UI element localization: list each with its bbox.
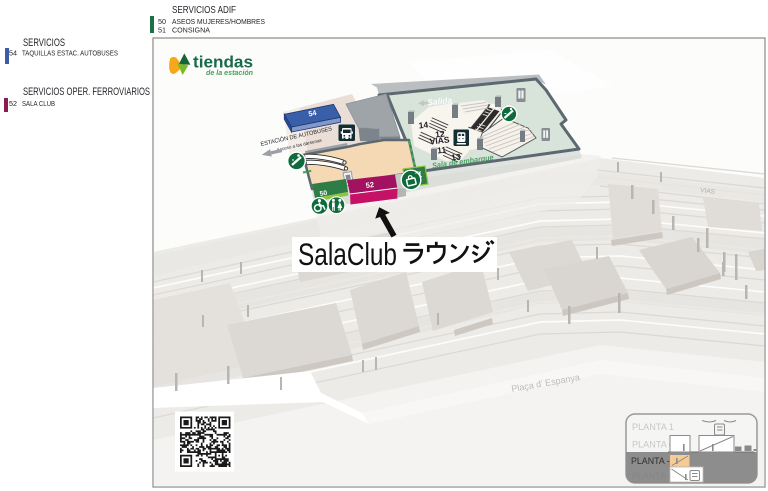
svg-text:11: 11 <box>437 145 447 156</box>
svg-text:52: 52 <box>9 99 17 108</box>
svg-text:TAQUILLAS ESTAC. AUTOBUSES: TAQUILLAS ESTAC. AUTOBUSES <box>22 49 118 58</box>
svg-text:SERVICIOS: SERVICIOS <box>23 37 65 49</box>
svg-text:51: 51 <box>158 26 166 35</box>
svg-text:PLANTA 1: PLANTA 1 <box>632 422 674 432</box>
svg-text:PLANTA 0: PLANTA 0 <box>632 440 674 450</box>
svg-text:50: 50 <box>319 190 328 198</box>
svg-text:SalaClub: SalaClub <box>298 236 397 272</box>
svg-text:14: 14 <box>418 120 429 131</box>
svg-text:54: 54 <box>9 49 17 58</box>
svg-text:52: 52 <box>365 180 374 190</box>
svg-text:SERVICIOS ADIF: SERVICIOS ADIF <box>172 5 236 16</box>
svg-text:de la estación: de la estación <box>206 68 253 77</box>
svg-text:SALA CLUB: SALA CLUB <box>22 99 55 108</box>
svg-text:CONSIGNA: CONSIGNA <box>172 26 210 35</box>
svg-text:SERVICIOS OPER. FERROVIARIOS: SERVICIOS OPER. FERROVIARIOS <box>23 86 150 98</box>
